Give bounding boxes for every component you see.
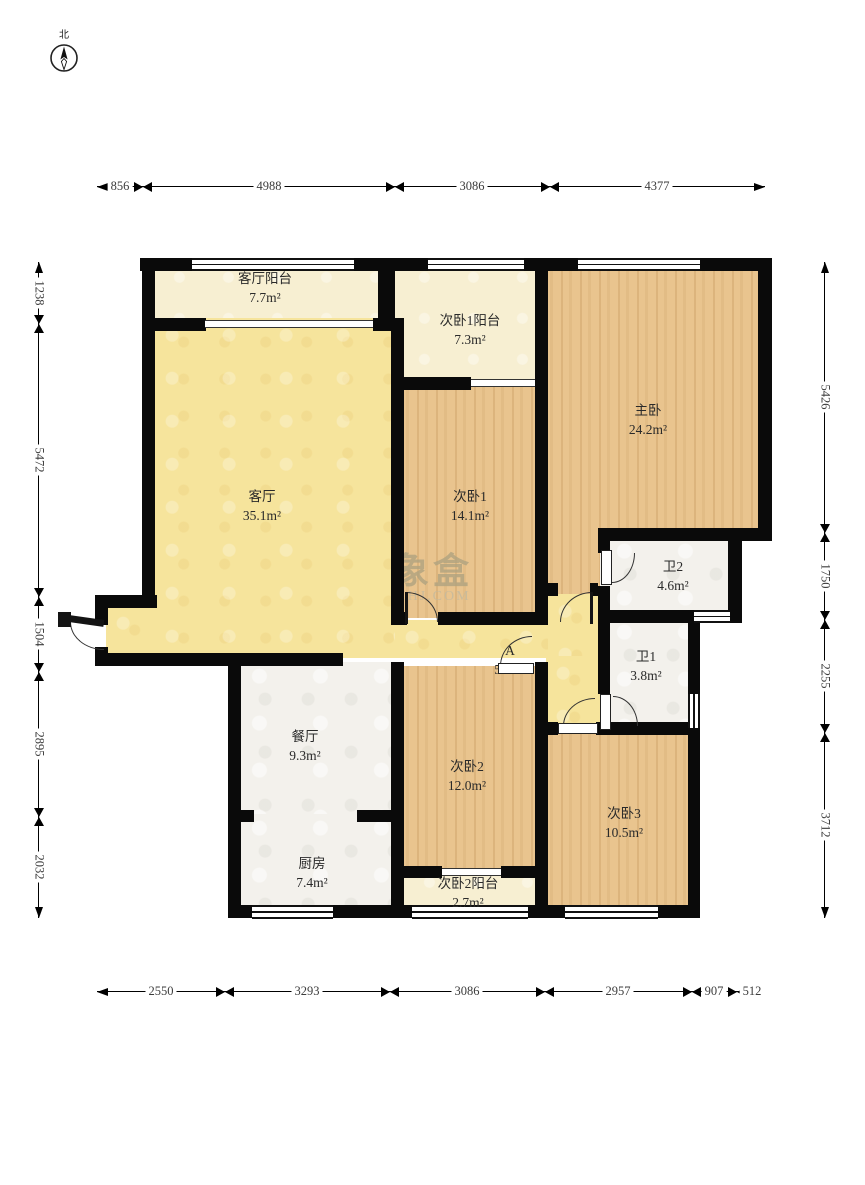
compass-north-label: 北: [44, 30, 84, 41]
wall: [598, 528, 772, 541]
room-entry-nook: [106, 606, 158, 654]
wall: [95, 595, 157, 608]
label-bedroom-2: 次卧212.0m²: [448, 758, 486, 796]
window: [688, 694, 700, 728]
dim-bottom-4: 907: [702, 984, 727, 999]
door-leaf-bedroom-2: [498, 663, 534, 674]
window: [428, 258, 524, 271]
wall: [228, 660, 241, 905]
label-bathroom-1: 卫13.8m²: [630, 648, 661, 686]
wall: [688, 728, 700, 908]
window: [252, 905, 333, 919]
wall: [535, 258, 548, 625]
wall: [391, 377, 471, 390]
wall: [598, 586, 610, 694]
wall: [228, 905, 254, 918]
dim-right-2: 2255: [818, 661, 833, 692]
door-leaf-bedroom-1: [405, 592, 408, 624]
sliding-door-window: [205, 320, 373, 328]
label-living-room: 客厅35.1m²: [243, 488, 281, 526]
dim-bottom-3: 2957: [603, 984, 634, 999]
wall: [548, 583, 558, 596]
dim-right-1: 1750: [818, 561, 833, 592]
floor-plan: 北 象盒 XHJ.COM: [0, 0, 865, 1185]
wall: [378, 258, 395, 323]
dim-right-3: 3712: [818, 810, 833, 841]
wall: [357, 810, 404, 822]
dim-left-2: 1504: [32, 619, 47, 650]
wall: [658, 905, 700, 918]
dim-top-2: 3086: [457, 179, 488, 194]
dim-top-3: 4377: [642, 179, 673, 194]
compass: 北: [44, 30, 84, 80]
label-bathroom-2: 卫24.6m²: [657, 558, 688, 596]
window: [578, 258, 700, 271]
window: [565, 905, 658, 919]
wall: [528, 905, 567, 918]
wall: [728, 528, 742, 622]
door-leaf-bathroom-2: [601, 550, 612, 585]
dim-right-0: 5426: [818, 382, 833, 413]
wall: [535, 722, 558, 735]
wall: [438, 612, 548, 625]
room-master-bedroom: [542, 265, 765, 533]
dim-bottom-5: 512: [740, 984, 765, 999]
label-living-balcony: 客厅阳台7.7m²: [238, 270, 292, 308]
wall: [228, 810, 254, 822]
wall: [391, 318, 404, 625]
dim-top-0: 856: [108, 179, 133, 194]
wall: [142, 318, 206, 331]
dim-left-3: 2895: [32, 729, 47, 760]
wall: [333, 905, 412, 918]
dim-left-0: 1238: [32, 278, 47, 309]
wall: [501, 866, 541, 878]
dim-bottom-2: 3086: [452, 984, 483, 999]
door-leaf-master-bedroom: [590, 592, 593, 624]
label-bedroom-3: 次卧310.5m²: [605, 805, 643, 843]
dim-top-1: 4988: [254, 179, 285, 194]
wall: [758, 258, 772, 528]
dim-bottom-1: 3293: [292, 984, 323, 999]
label-bedroom-1: 次卧114.1m²: [451, 488, 489, 526]
label-bed2-balcony: 次卧2阳台2.7m²: [438, 875, 499, 913]
wall: [404, 866, 442, 878]
wall: [391, 662, 404, 905]
sliding-door-window: [471, 379, 535, 387]
dim-bottom-0: 2550: [146, 984, 177, 999]
wall: [598, 610, 694, 623]
label-kitchen: 厨房7.4m²: [296, 855, 327, 893]
window: [694, 610, 730, 623]
door-hinge-entry: [58, 612, 71, 627]
dim-left-1: 5472: [32, 445, 47, 476]
compass-icon: [47, 41, 81, 75]
door-leaf-bedroom-3: [558, 723, 598, 734]
door-leaf-bathroom-1: [600, 694, 611, 730]
label-dining-room: 餐厅9.3m²: [289, 728, 320, 766]
wall: [730, 610, 742, 623]
dim-left-4: 2032: [32, 852, 47, 883]
label-bed1-balcony: 次卧1阳台7.3m²: [440, 312, 501, 350]
wall: [596, 722, 700, 735]
label-master-bedroom: 主卧24.2m²: [629, 402, 667, 440]
wall: [95, 653, 343, 666]
